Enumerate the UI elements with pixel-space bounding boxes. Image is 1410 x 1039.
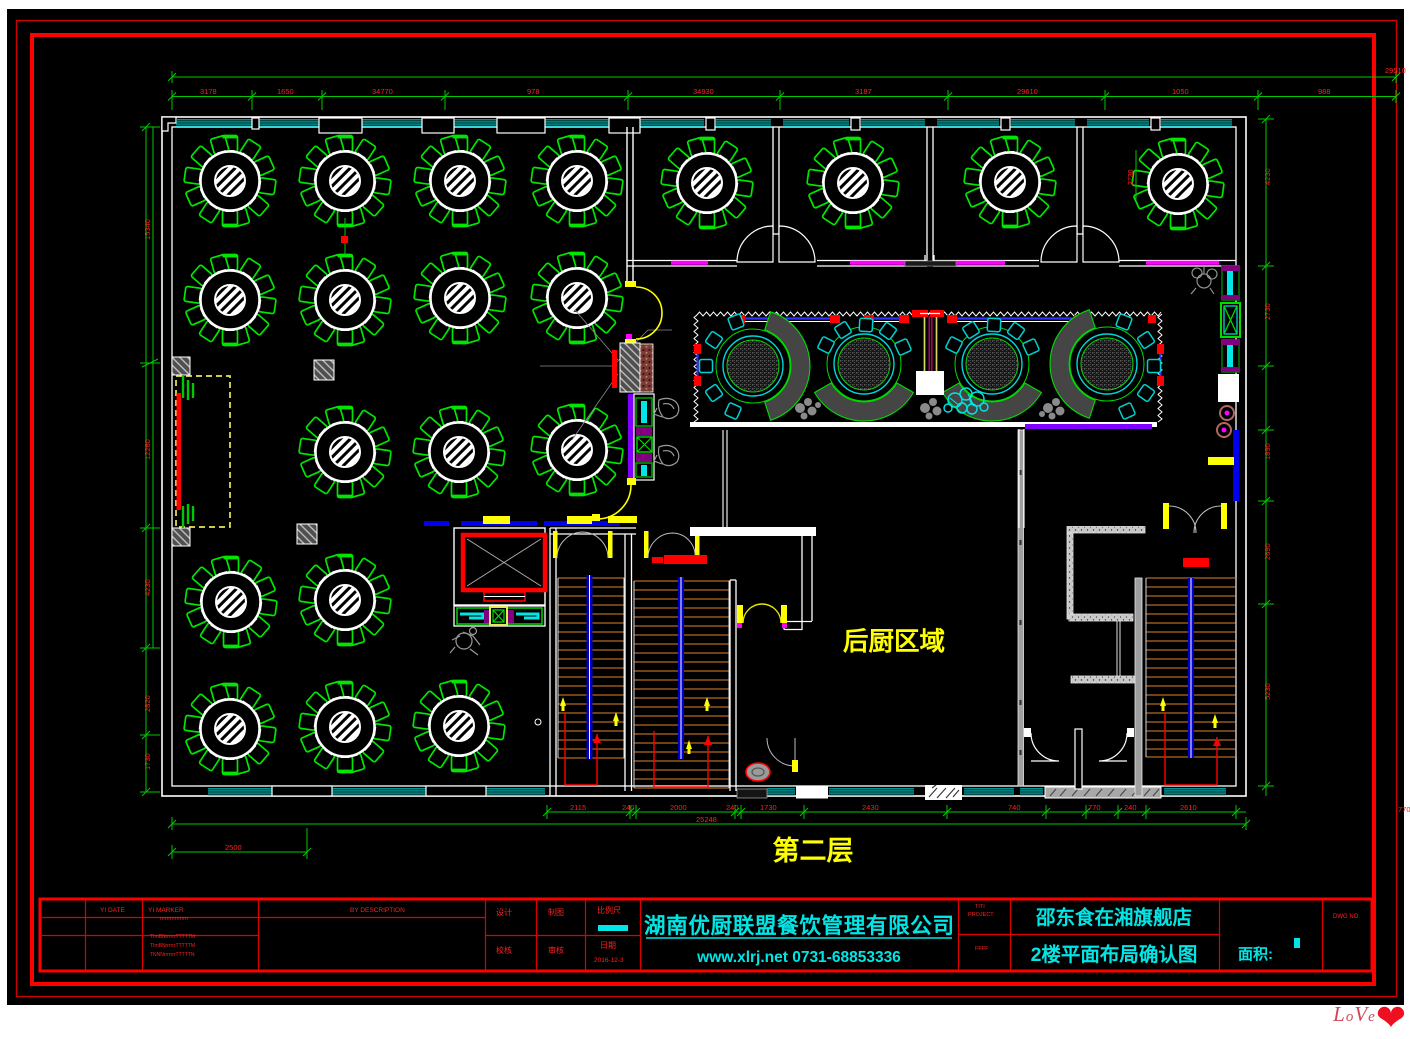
svg-text:1730: 1730 [760, 803, 777, 812]
svg-text:www.xlrj.net 0731-68853336: www.xlrj.net 0731-68853336 [696, 949, 901, 966]
svg-text:34770: 34770 [372, 87, 393, 96]
svg-text:1730: 1730 [143, 753, 152, 770]
svg-text:2820: 2820 [143, 695, 152, 712]
svg-text:2730: 2730 [1128, 169, 1135, 185]
svg-text:740: 740 [1008, 803, 1021, 812]
svg-text:988: 988 [1318, 87, 1331, 96]
svg-text:2楼平面布局确认图: 2楼平面布局确认图 [1031, 943, 1198, 966]
svg-text:2000: 2000 [670, 803, 687, 812]
svg-text:BY DESCRIPTION: BY DESCRIPTION [350, 907, 405, 914]
svg-text:邵东食在湘旗舰店: 邵东食在湘旗舰店 [1035, 906, 1192, 929]
svg-text:TITI: TITI [975, 904, 985, 910]
svg-text:15340: 15340 [143, 219, 152, 240]
svg-text:rrrrrrrrrrrrrrrrr: rrrrrrrrrrrrrrrrr [160, 916, 189, 922]
svg-text:2500: 2500 [225, 843, 242, 852]
svg-text:29510: 29510 [1385, 66, 1406, 75]
svg-text:TImBNrrrrrrTTTTTM: TImBNrrrrrrTTTTTM [150, 934, 195, 940]
svg-text:1890: 1890 [1263, 443, 1272, 460]
svg-text:1050: 1050 [1172, 87, 1189, 96]
svg-text:2430: 2430 [862, 803, 879, 812]
svg-text:25248: 25248 [696, 815, 717, 824]
svg-text:2690: 2690 [1263, 543, 1272, 560]
svg-text:PROJECT: PROJECT [968, 912, 994, 918]
svg-text:240: 240 [1124, 803, 1137, 812]
svg-text:TNNNrrrrrrrTTTTTN: TNNNrrrrrrrTTTTTN [150, 952, 195, 958]
svg-text:4230: 4230 [143, 579, 152, 596]
svg-text:770: 770 [1398, 805, 1410, 814]
svg-text:2115: 2115 [570, 803, 586, 812]
svg-text:240: 240 [622, 803, 635, 812]
svg-text:审核: 审核 [548, 945, 564, 955]
svg-text:YI DATE: YI DATE [100, 907, 125, 914]
svg-text:2610: 2610 [1180, 803, 1197, 812]
svg-text:DWG NO: DWG NO [1333, 914, 1359, 920]
svg-text:12280: 12280 [143, 439, 152, 460]
svg-text:5230: 5230 [1263, 683, 1272, 700]
svg-text:2016-12-3: 2016-12-3 [594, 957, 624, 964]
svg-text:YI MARKER: YI MARKER [148, 907, 184, 914]
svg-text:湖南优厨联盟餐饮管理有限公司: 湖南优厨联盟餐饮管理有限公司 [644, 913, 954, 938]
svg-text:34930: 34930 [693, 87, 714, 96]
svg-text:制图: 制图 [548, 907, 564, 917]
svg-text:4230: 4230 [1263, 168, 1272, 185]
svg-text:770: 770 [1088, 803, 1101, 812]
svg-text:FFFF: FFFF [975, 946, 989, 952]
svg-text:978: 978 [527, 87, 540, 96]
svg-text:比例尺: 比例尺 [597, 905, 621, 915]
svg-text:校核: 校核 [496, 945, 512, 955]
svg-text:1650: 1650 [277, 87, 294, 96]
svg-text:后厨区域: 后厨区域 [843, 627, 945, 656]
svg-text:240: 240 [726, 803, 739, 812]
svg-text:2730: 2730 [1263, 303, 1272, 320]
svg-text:TImBNrrrrrrTTTTTM: TImBNrrrrrrTTTTTM [150, 943, 195, 949]
svg-text:日期: 日期 [600, 941, 616, 950]
svg-text:3187: 3187 [855, 87, 872, 96]
svg-text:29610: 29610 [1017, 87, 1038, 96]
svg-text:设计: 设计 [496, 907, 512, 917]
svg-text:第二层: 第二层 [773, 835, 854, 866]
svg-text:3178: 3178 [200, 87, 217, 96]
svg-text:面积:: 面积: [1238, 945, 1273, 963]
